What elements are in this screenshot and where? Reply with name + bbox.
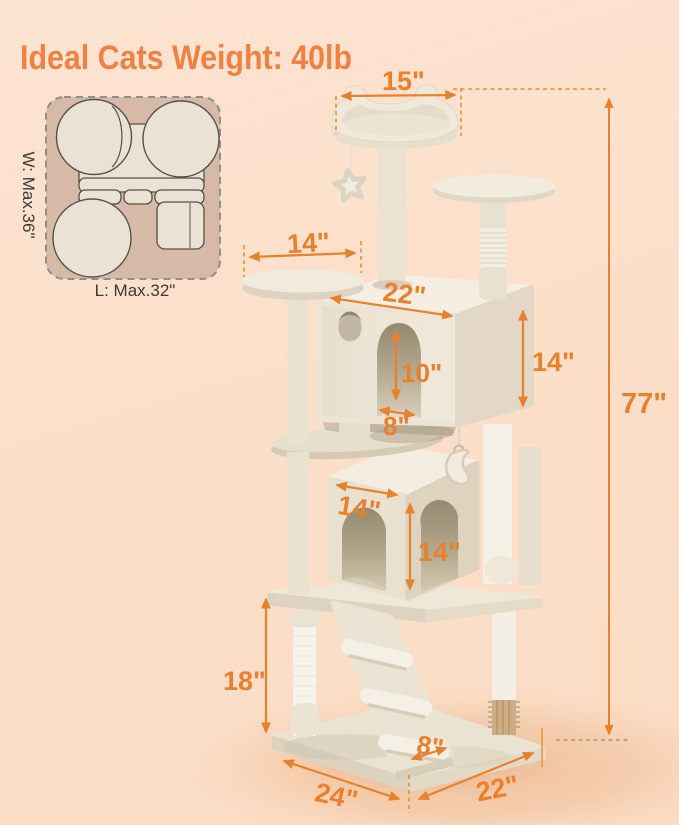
svg-text:W: Max.36": W: Max.36" — [19, 152, 38, 239]
svg-text:10": 10" — [401, 358, 442, 388]
svg-text:18": 18" — [223, 666, 266, 696]
svg-text:8": 8" — [383, 411, 410, 441]
svg-text:14": 14" — [286, 227, 330, 259]
svg-text:22": 22" — [381, 277, 427, 312]
svg-text:L: Max.32": L: Max.32" — [95, 281, 176, 300]
svg-text:8": 8" — [414, 729, 446, 763]
svg-text:77": 77" — [621, 388, 667, 420]
svg-text:14": 14" — [418, 537, 461, 567]
svg-text:15": 15" — [382, 66, 425, 96]
svg-text:14": 14" — [532, 347, 575, 377]
svg-text:Ideal Cats Weight: 40lb: Ideal Cats Weight: 40lb — [20, 39, 352, 77]
